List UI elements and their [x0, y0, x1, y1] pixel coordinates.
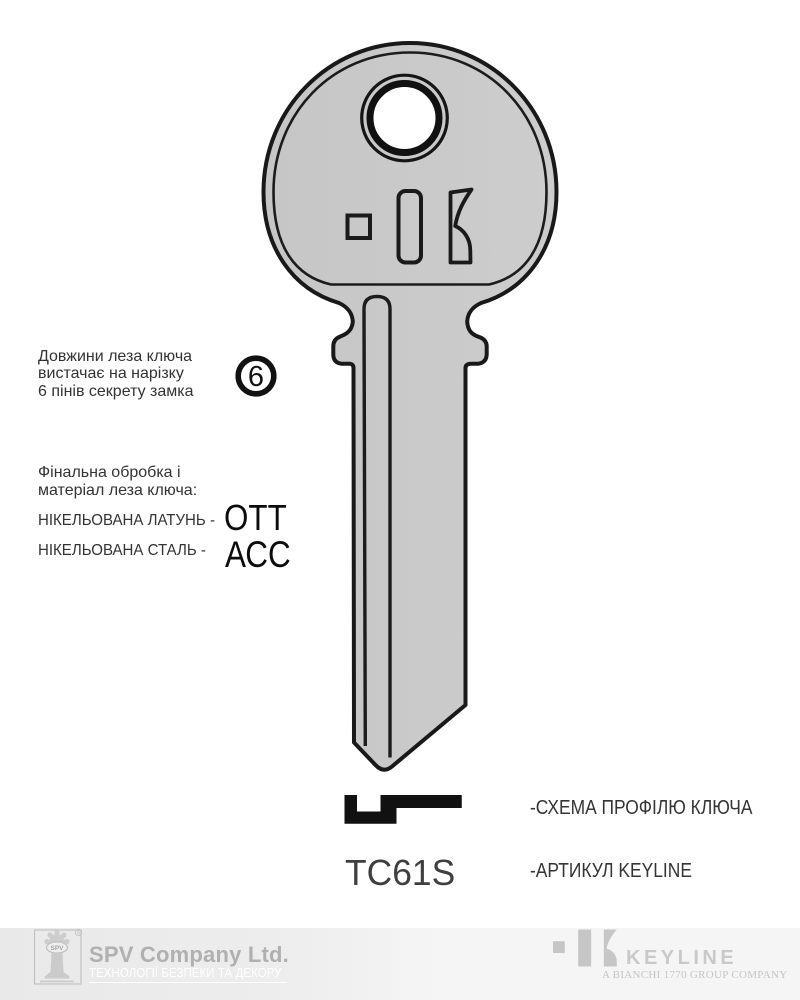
- svg-text:SPV: SPV: [50, 945, 64, 952]
- svg-text:6: 6: [248, 361, 264, 393]
